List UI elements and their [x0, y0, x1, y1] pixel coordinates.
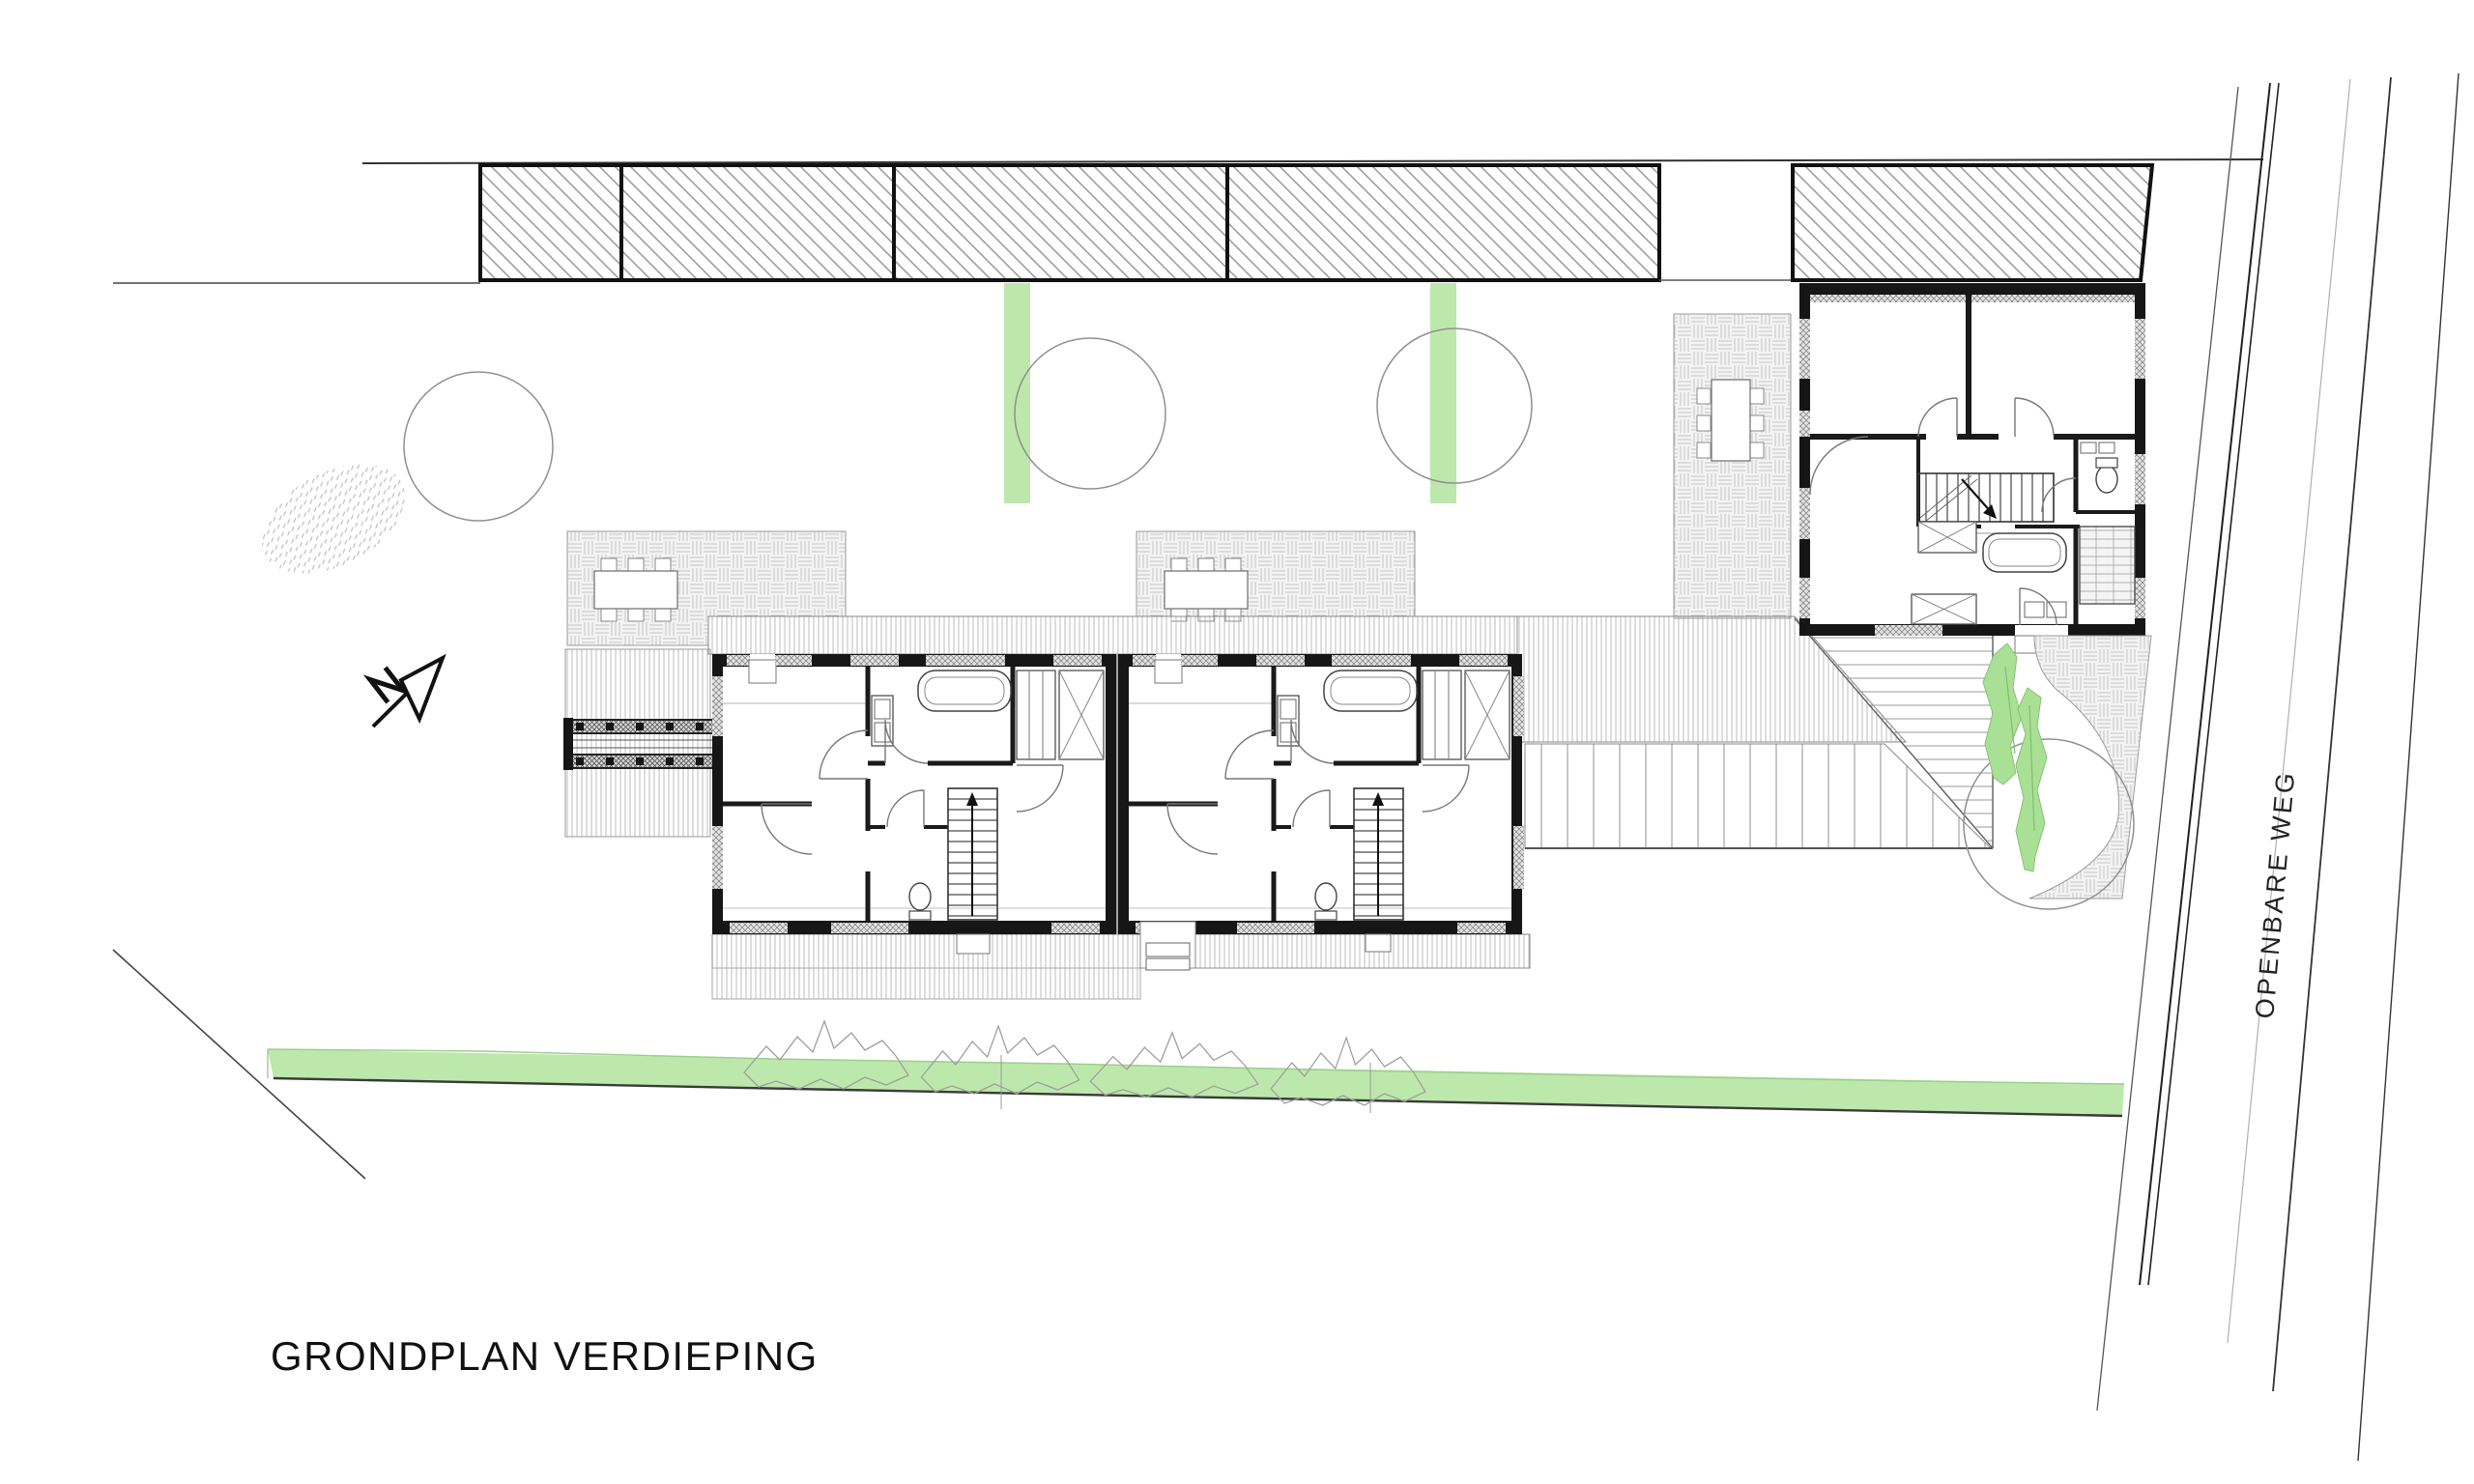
deck-west-gallery — [565, 649, 710, 837]
east-paving — [2029, 636, 2151, 899]
duplex-house-right — [1106, 654, 1524, 970]
north-boundary-line — [362, 159, 2263, 163]
east-garden — [1964, 636, 2151, 909]
drawing-title: GRONDPLAN VERDIEPING — [271, 1333, 819, 1379]
existing-roofs-strip — [480, 165, 2152, 280]
detached-house-northeast — [1799, 283, 2145, 653]
leaf-cluster-2 — [2016, 688, 2047, 871]
deck-south-2 — [712, 968, 1140, 999]
hedge-band — [268, 1049, 2124, 1115]
north-arrow-head — [401, 658, 443, 719]
road-edge-2 — [2148, 83, 2279, 1285]
window-east-1 — [1513, 676, 1524, 736]
hedge-strip-vertical-2 — [1430, 283, 1456, 503]
planting-bed-ellipse — [244, 442, 423, 596]
deck-south-1 — [712, 934, 1530, 968]
entrance-step-1 — [1146, 943, 1190, 956]
site-plan-drawing: OPENBARE WEG GRONDPLAN VERDIEPING — [0, 0, 2474, 1484]
roof-block-east — [1793, 165, 2152, 280]
terraces — [567, 314, 1791, 645]
tree-outline-1 — [1015, 338, 1165, 489]
north-arrow — [370, 658, 443, 727]
top-wall-insulation — [1810, 295, 2135, 302]
garden-table-northeast — [1697, 380, 1764, 461]
road-center-line — [2228, 79, 2350, 1343]
north-arrow-n-glyph — [370, 668, 403, 702]
road-edge-3 — [2273, 77, 2391, 1391]
window-east-2 — [1513, 826, 1524, 889]
deck-north — [708, 616, 1517, 654]
entrance-step-2 — [1146, 958, 1190, 970]
window-west-1 — [712, 676, 723, 736]
duplex-house-left — [712, 654, 1116, 954]
public-road: OPENBARE WEG — [2097, 73, 2459, 1461]
garden-table-west — [594, 558, 677, 621]
shower — [2080, 527, 2135, 604]
window-west-2 — [712, 826, 723, 889]
wc-toilet — [2096, 466, 2117, 493]
south-step-left — [957, 934, 990, 954]
tree-outline-3 — [404, 372, 553, 521]
south-step-right — [1366, 934, 1391, 952]
site-plan-page: OPENBARE WEG GRONDPLAN VERDIEPING — [0, 0, 2474, 1484]
garden-table-middle — [1165, 558, 1248, 621]
roof-block-row — [480, 165, 1659, 280]
south-hedge — [268, 1021, 2124, 1116]
staircase — [1918, 473, 2054, 522]
terrace-northeast — [1674, 314, 1791, 618]
road-label: OPENBARE WEG — [2250, 769, 2300, 1020]
bridge-end-post — [563, 718, 573, 770]
